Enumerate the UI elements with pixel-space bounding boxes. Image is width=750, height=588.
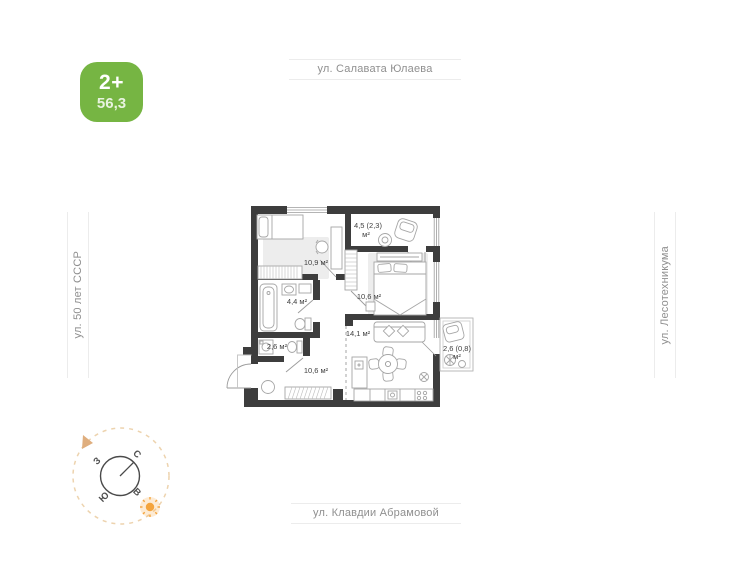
kitchen-counter-vertical <box>352 357 367 388</box>
window-bedroom2-right <box>433 262 440 302</box>
window-loggia-right <box>433 218 440 246</box>
sink-bathroom <box>282 284 296 295</box>
wardrobe-bedroom2 <box>345 250 357 290</box>
door-wc <box>286 358 303 372</box>
label-bathroom: 4,4 м² <box>287 297 308 306</box>
dresser-bedroom2 <box>377 253 422 261</box>
bed-single <box>257 215 303 239</box>
sofa <box>374 322 425 342</box>
pouf-loggia <box>379 234 392 247</box>
floor-plan-svg: 10,9 м² 4,5 (2,3) м² 10,6 м² 14,1 м² 4,4… <box>0 0 750 588</box>
entrance-door-arc <box>227 355 252 388</box>
label-wc: 2,6 м² <box>267 342 288 351</box>
armchair-loggia <box>393 217 418 242</box>
label-bedroom-2: 10,6 м² <box>357 292 382 301</box>
bathtub <box>260 284 277 331</box>
label-bedroom-1: 10,9 м² <box>304 258 329 267</box>
compass-west: З <box>91 455 103 467</box>
window-top-bedroom1 <box>287 206 327 214</box>
label-loggia: 4,5 (2,3) <box>354 221 382 230</box>
wardrobe-bedroom1 <box>258 266 302 279</box>
toilet-bathroom <box>295 318 311 330</box>
plant-living <box>420 373 429 382</box>
bed-double <box>374 262 426 315</box>
north-arrow-icon <box>82 435 93 449</box>
bathroom-cabinet <box>299 284 311 293</box>
label-balcony-right-unit: м² <box>453 352 461 361</box>
label-loggia-unit: м² <box>362 230 370 239</box>
armchair-balcony <box>442 321 465 343</box>
dining-table <box>368 346 406 381</box>
toilet-wc <box>288 341 303 353</box>
nightstand <box>366 302 375 311</box>
label-hallway: 10,6 м² <box>304 366 329 375</box>
hallway-console <box>262 381 275 394</box>
sun-icon <box>140 497 160 517</box>
kitchen-counter <box>354 389 433 401</box>
label-kitchen-living: 14,1 м² <box>346 329 371 338</box>
compass: С З Ю В <box>73 428 169 524</box>
floorplan-page: 2+ 56,3 ул. Салавата Юлаева ул. Клавдии … <box>0 0 750 588</box>
compass-north: С <box>130 448 143 461</box>
wardrobe-hallway <box>285 387 331 399</box>
